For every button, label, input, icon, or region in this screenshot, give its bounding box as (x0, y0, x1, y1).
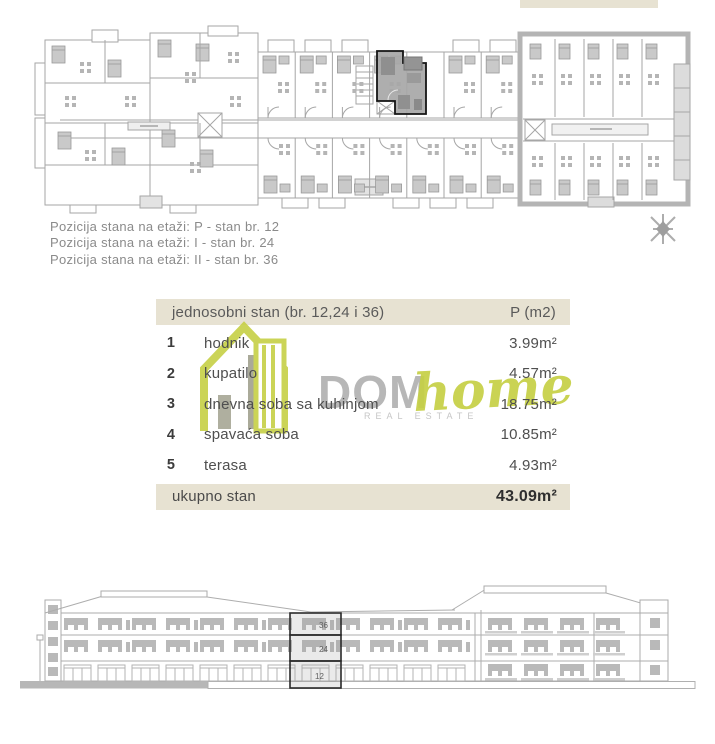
room-area: 10.85m² (501, 426, 557, 443)
room-label: spavaća soba (204, 426, 299, 443)
table-row: 4 spavaća soba 10.85m² (156, 420, 570, 451)
room-area: 18.75m² (501, 396, 557, 413)
row-number: 1 (164, 335, 178, 351)
table-row: 3 dnevna soba sa kuhinjom 18.75m² (156, 389, 570, 420)
area-table: jednosobni stan (br. 12,24 i 36) P (m2) … (156, 299, 570, 510)
floor-label: 12 (315, 672, 324, 681)
table-row: 2 kupatilo 4.57m² (156, 359, 570, 390)
building-elevation: 36 24 12 (0, 572, 715, 717)
brochure-page: Pozicija stana na etaži: P - stan br. 12… (0, 0, 715, 744)
position-line: Pozicija stana na etaži: P - stan br. 12 (50, 219, 279, 235)
table-row: 5 terasa 4.93m² (156, 450, 570, 481)
row-number: 3 (164, 396, 178, 412)
room-area: 4.93m² (509, 457, 557, 474)
room-label: hodnik (204, 335, 249, 352)
table-body: 1 hodnik 3.99m² 2 kupatilo 4.57m² 3 dnev… (156, 325, 570, 481)
room-area: 3.99m² (509, 335, 557, 352)
total-value: 43.09m² (496, 488, 557, 506)
floor-label: 36 (319, 621, 328, 630)
table-title: jednosobni stan (br. 12,24 i 36) (172, 304, 384, 321)
position-line: Pozicija stana na etaži: II - stan br. 3… (50, 252, 279, 268)
table-row: 1 hodnik 3.99m² (156, 328, 570, 359)
elevation-highlight: 36 24 12 (290, 613, 341, 688)
table-header-row: jednosobni stan (br. 12,24 i 36) P (m2) (156, 299, 570, 325)
room-label: dnevna soba sa kuhinjom (204, 396, 379, 413)
elevation-highlight-36 (290, 613, 341, 635)
row-number: 4 (164, 427, 178, 443)
row-number: 2 (164, 366, 178, 382)
room-label: kupatilo (204, 365, 257, 382)
total-label: ukupno stan (172, 488, 256, 505)
floor-label: 24 (319, 645, 328, 654)
room-label: terasa (204, 457, 247, 474)
room-area: 4.57m² (509, 365, 557, 382)
row-number: 5 (164, 457, 178, 473)
position-line: Pozicija stana na etaži: I - stan br. 24 (50, 235, 279, 251)
area-column-header: P (m2) (510, 304, 556, 321)
elevation-highlight-24 (290, 635, 341, 661)
north-arrow-icon (651, 214, 675, 244)
position-info: Pozicija stana na etaži: P - stan br. 12… (50, 219, 279, 268)
table-total-row: ukupno stan 43.09m² (156, 484, 570, 510)
